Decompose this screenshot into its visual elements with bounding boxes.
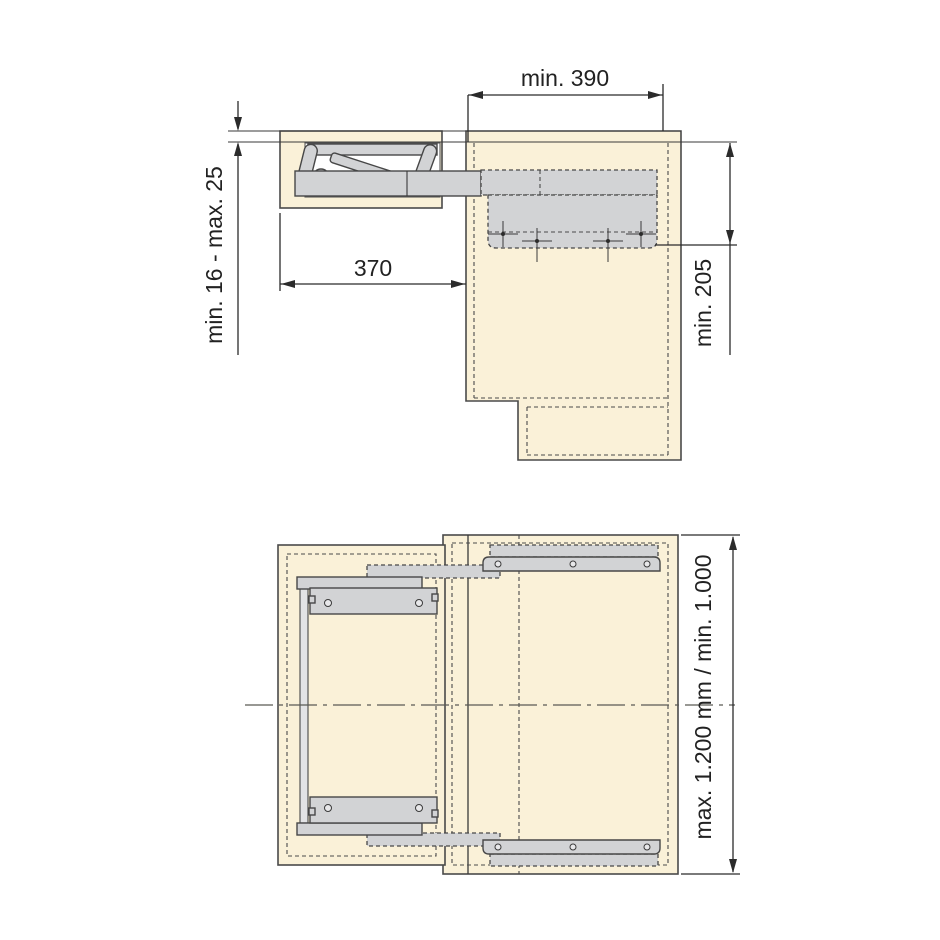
top-slide-bar <box>367 565 500 578</box>
side-section-view: min. 390 min. 16 - max. 25 370 min. 205 <box>0 0 940 500</box>
bracket-rail <box>481 170 657 195</box>
dim-cabinet-length-label: max. 1.200 mm / min. 1.000 <box>690 554 716 839</box>
bottom-cabinet-rail <box>490 854 658 866</box>
mechanism-slide-arm <box>295 171 481 196</box>
dimension-370: 370 <box>280 213 466 291</box>
dim-370-label: 370 <box>354 255 392 281</box>
top-worktop-bar <box>297 577 422 589</box>
dim-thickness-label: min. 16 - max. 25 <box>201 166 227 344</box>
bracket-body <box>488 195 657 248</box>
dimension-panel-thickness: min. 16 - max. 25 <box>201 101 242 355</box>
mechanism-top-bar <box>308 144 437 155</box>
top-cabinet-rail <box>490 545 658 557</box>
dim-min-390-label: min. 390 <box>521 65 609 91</box>
bottom-worktop-bar <box>297 823 422 835</box>
dim-min-205-label: min. 205 <box>690 259 716 347</box>
plan-view: max. 1.200 mm / min. 1.000 <box>0 500 940 940</box>
technical-drawing-canvas: min. 390 min. 16 - max. 25 370 min. 205 <box>0 0 940 940</box>
